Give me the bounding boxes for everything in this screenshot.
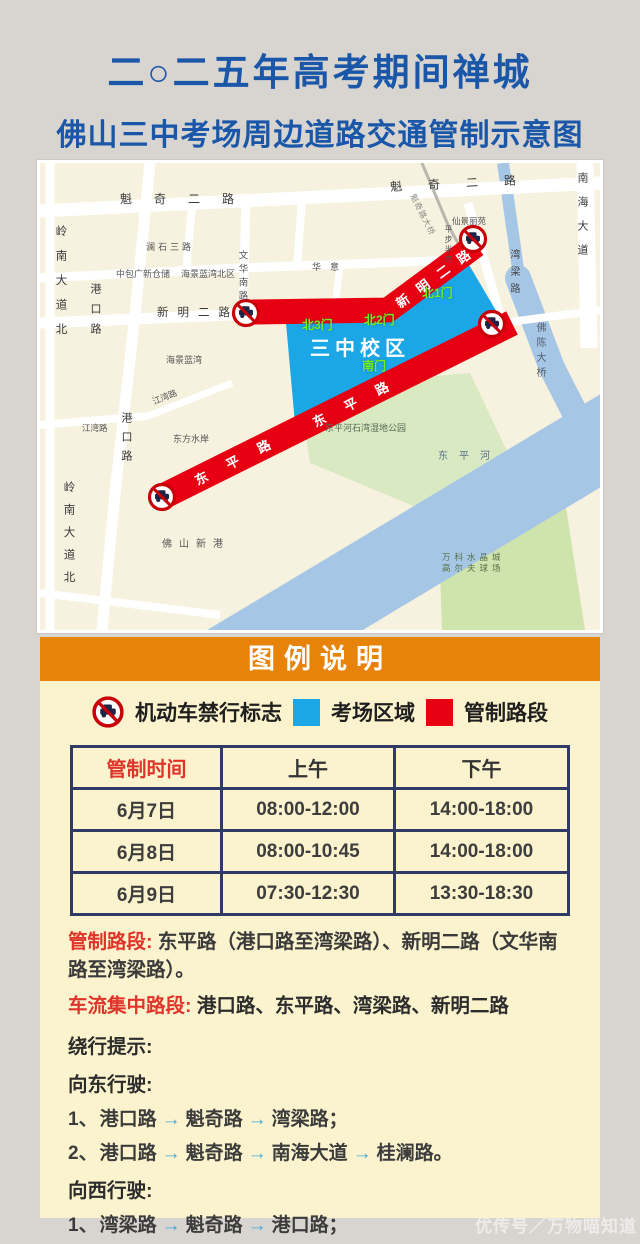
- header-morning: 上午: [222, 747, 395, 789]
- control-schedule-table: 管制时间 上午 下午 6月7日 08:00-12:00 14:00-18:00 …: [70, 745, 570, 916]
- poi-label-xianjing: 仙景丽苑: [452, 217, 486, 226]
- road-label-nanhai: 南海大道: [576, 172, 587, 268]
- gate-label-north2: 北2门: [364, 314, 395, 326]
- road-label-lingnan-north: 岭南大道北: [54, 225, 66, 348]
- arrow-icon: →: [243, 1215, 272, 1236]
- road-label-lanshi: 澜石三路: [146, 243, 194, 252]
- congestion-note: 车流集中路段: 港口路、东平路、湾梁路、新明二路: [68, 993, 576, 1021]
- poi-label-xingang: 佛山新港: [162, 540, 230, 550]
- poster-page: 二○二五年高考期间禅城 佛山三中考场周边道路交通管制示意图: [0, 0, 640, 1244]
- legend-control-label: 管制路段: [464, 697, 548, 727]
- congestion-text: 港口路、东平路、湾梁路、新明二路: [197, 995, 509, 1017]
- road-label-wanliang: 湾梁路: [508, 249, 518, 300]
- eastbound-heading: 向东行驶:: [68, 1068, 576, 1097]
- control-sections-note: 管制路段: 东平路（港口路至湾梁路）、新明二路（文华南路至湾梁路）。: [68, 929, 576, 984]
- poi-label-vanke-1: 万科水晶城: [442, 553, 505, 562]
- road-label-kuiqi-west: 魁奇二路: [120, 193, 256, 205]
- arrow-icon: →: [348, 1143, 377, 1164]
- route-road: 魁奇路: [186, 1109, 243, 1130]
- poi-label-dongfang: 东方水岸: [173, 435, 209, 444]
- table-row: 6月8日 08:00-10:45 14:00-18:00: [72, 831, 569, 873]
- route-number: 2、: [68, 1143, 100, 1164]
- date-cell: 6月9日: [72, 873, 222, 915]
- arrow-icon: →: [243, 1143, 272, 1164]
- map-canvas: [40, 163, 600, 630]
- notes-section: 管制路段: 东平路（港口路至湾梁路）、新明二路（文华南路至湾梁路）。 车流集中路…: [40, 916, 600, 1244]
- westbound-heading: 向西行驶:: [68, 1174, 576, 1203]
- header-afternoon: 下午: [395, 747, 569, 789]
- road-label-wenhua: 文华南路: [237, 250, 247, 304]
- route-number: 1、: [68, 1215, 100, 1236]
- route-road: 南海大道: [272, 1143, 348, 1164]
- traffic-map: 魁奇二路 魁奇二路 澜石三路 中包广新仓储 海景蓝湾北区 文华南路 华意 新明二…: [40, 163, 600, 630]
- header-control-time: 管制时间: [72, 747, 222, 789]
- legend-no-entry-label: 机动车禁行标志: [135, 697, 282, 727]
- road-label-gangkou-south: 港口路: [120, 412, 131, 469]
- poi-label-wetland: 东平河石湾湿地公园: [325, 424, 406, 433]
- route-road: 魁奇路: [186, 1215, 243, 1236]
- congestion-label: 车流集中路段:: [68, 995, 192, 1017]
- time-cell: 14:00-18:00: [395, 789, 569, 831]
- road-label-fochen: 佛陈大桥: [534, 322, 544, 382]
- road-label-gangkou-north: 港口路: [89, 283, 100, 343]
- poi-label-warehouse: 中包广新仓储: [116, 270, 170, 279]
- title-line2: 佛山三中考场周边道路交通管制示意图: [0, 110, 640, 154]
- watermark: 优传号／万物喵知道: [475, 1212, 637, 1237]
- control-sections-label: 管制路段:: [68, 931, 153, 953]
- road-label-jiangwan-2: 江湾路: [82, 424, 108, 433]
- route-road: 港口路；: [272, 1215, 348, 1236]
- road-label-lingnan-south: 岭南大道北: [62, 481, 74, 594]
- table-header-row: 管制时间 上午 下午: [72, 747, 569, 789]
- river-label-dongping: 东平河: [438, 452, 501, 462]
- route-road: 魁奇路: [186, 1143, 243, 1164]
- time-cell: 08:00-12:00: [222, 789, 395, 831]
- legend-row: 机动车禁行标志 考场区域 管制路段: [40, 696, 600, 728]
- page-title: 二○二五年高考期间禅城 佛山三中考场周边道路交通管制示意图: [0, 42, 640, 154]
- date-cell: 6月7日: [72, 789, 222, 831]
- route-road: 港口路: [100, 1109, 157, 1130]
- eastbound-route-2: 2、港口路→魁奇路→南海大道→桂澜路。: [68, 1138, 576, 1165]
- no-entry-icon: [92, 696, 124, 728]
- title-line1: 二○二五年高考期间禅城: [0, 42, 640, 96]
- legend-exam-area-label: 考场区域: [331, 697, 415, 727]
- poi-label-haijing-beiqu: 海景蓝湾北区: [181, 270, 235, 279]
- date-cell: 6月8日: [72, 831, 222, 873]
- arrow-icon: →: [157, 1143, 186, 1164]
- poi-label-vanke-2: 高尔夫球场: [442, 564, 505, 573]
- table-row: 6月9日 07:30-12:30 13:30-18:30: [72, 873, 569, 915]
- gate-label-north3: 北3门: [302, 319, 333, 331]
- time-cell: 07:30-12:30: [222, 873, 395, 915]
- route-road: 桂澜路。: [377, 1143, 453, 1164]
- arrow-icon: →: [157, 1109, 186, 1130]
- campus-label: 三中校区: [310, 339, 410, 359]
- route-road: 湾梁路；: [272, 1109, 348, 1130]
- legend-panel: 图例说明 机动车禁行标志 考场区域 管制路段 管制时间 上午 下午 6月7日 0…: [40, 637, 600, 1218]
- table-row: 6月7日 08:00-12:00 14:00-18:00: [72, 789, 569, 831]
- road-label-xinming: 新明二路: [157, 308, 239, 320]
- exam-area-swatch: [293, 699, 320, 726]
- arrow-icon: →: [157, 1215, 186, 1236]
- arrow-icon: →: [243, 1109, 272, 1130]
- legend-header: 图例说明: [40, 637, 600, 681]
- time-cell: 14:00-18:00: [395, 831, 569, 873]
- time-cell: 08:00-10:45: [222, 831, 395, 873]
- route-road: 港口路: [100, 1143, 157, 1164]
- poi-label-haijing: 海景蓝湾: [166, 356, 202, 365]
- time-cell: 13:30-18:30: [395, 873, 569, 915]
- gate-label-south: 南门: [362, 360, 386, 372]
- eastbound-route-1: 1、港口路→魁奇路→湾梁路；: [68, 1104, 576, 1131]
- no-entry-sign: [480, 312, 505, 337]
- detour-heading: 绕行提示:: [68, 1030, 576, 1059]
- route-road: 湾梁路: [100, 1215, 157, 1236]
- control-section-swatch: [426, 699, 453, 726]
- route-number: 1、: [68, 1109, 100, 1130]
- no-entry-sign: [150, 485, 175, 510]
- poi-label-huayi: 华意: [312, 263, 348, 272]
